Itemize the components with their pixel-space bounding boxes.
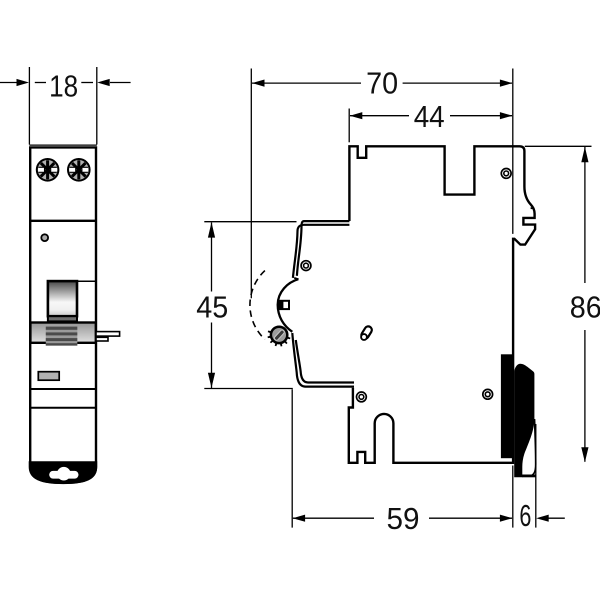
svg-text:59: 59 [387, 501, 420, 536]
svg-text:44: 44 [414, 99, 445, 134]
svg-text:86: 86 [570, 289, 600, 324]
svg-text:6: 6 [519, 498, 531, 533]
svg-text:45: 45 [196, 290, 228, 325]
svg-text:70: 70 [366, 65, 398, 100]
svg-text:18: 18 [49, 68, 78, 103]
